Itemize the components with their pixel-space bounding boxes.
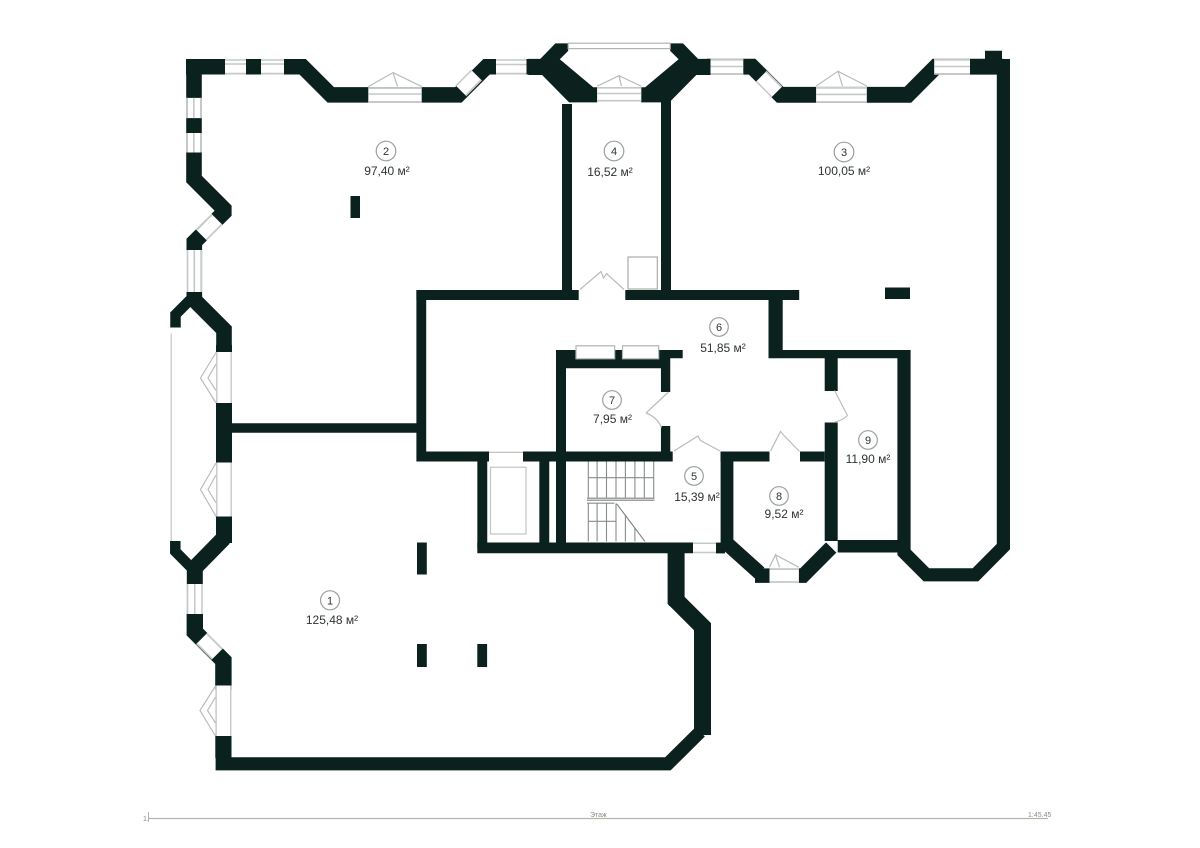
svg-text:2: 2: [383, 146, 389, 158]
svg-text:1.: 1.: [143, 816, 149, 823]
svg-text:100,05 м²: 100,05 м²: [818, 164, 870, 178]
svg-text:7: 7: [609, 395, 615, 407]
svg-text:97,40 м²: 97,40 м²: [364, 164, 410, 178]
svg-text:11,90 м²: 11,90 м²: [846, 452, 891, 466]
svg-text:5: 5: [691, 471, 697, 483]
svg-text:16,52 м²: 16,52 м²: [587, 165, 633, 179]
svg-text:15,39 м²: 15,39 м²: [674, 490, 720, 504]
svg-text:125,48 м²: 125,48 м²: [306, 613, 358, 627]
svg-text:8: 8: [776, 491, 782, 503]
svg-text:6: 6: [716, 322, 722, 334]
svg-text:3: 3: [841, 147, 847, 159]
svg-text:9,52 м²: 9,52 м²: [765, 507, 804, 521]
svg-text:9: 9: [865, 435, 871, 447]
svg-text:7,95 м²: 7,95 м²: [593, 412, 632, 426]
svg-text:1:45.45: 1:45.45: [1028, 812, 1051, 819]
svg-text:Этаж: Этаж: [590, 812, 607, 819]
svg-text:1: 1: [327, 595, 333, 607]
svg-text:51,85 м²: 51,85 м²: [700, 341, 746, 355]
svg-text:4: 4: [611, 146, 617, 158]
